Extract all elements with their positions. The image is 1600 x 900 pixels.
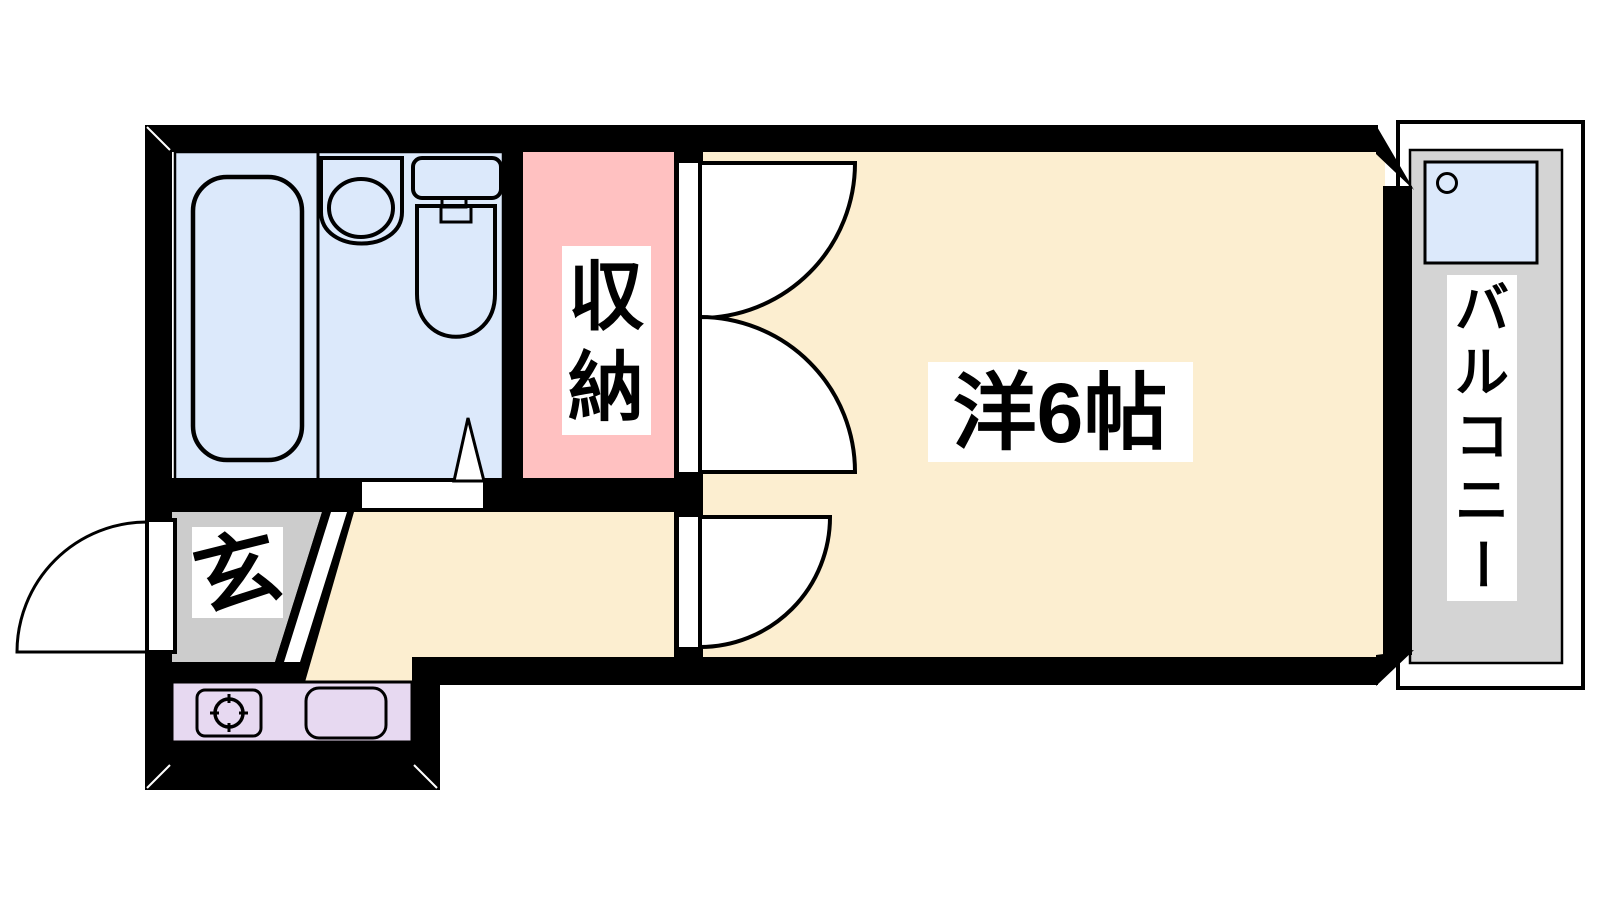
wall-left-upper xyxy=(145,125,172,520)
bathroom-floor xyxy=(175,152,503,480)
wall-kitchen-right xyxy=(412,657,440,790)
closet-door-opening xyxy=(679,163,698,472)
room-door-opening xyxy=(679,517,698,647)
wall-bottom xyxy=(412,657,1378,685)
balcony-label-char-2: ル xyxy=(1455,343,1509,403)
washing-machine-pan xyxy=(1425,162,1537,263)
balcony-label-char-4: ニ xyxy=(1455,471,1509,531)
floor-plan-canvas: 洋6帖 収 納 玄 バ ル コ ニ ー xyxy=(0,0,1600,900)
wall-left-lower xyxy=(145,652,172,790)
closet-label-char-2: 納 xyxy=(568,346,644,431)
main-room-label: 洋6帖 xyxy=(953,366,1168,460)
balcony-label-char-3: コ xyxy=(1455,407,1509,467)
wall-bath-closet-divider xyxy=(503,125,523,512)
balcony-label-char-5: ー xyxy=(1451,537,1511,591)
closet-label-char-1: 収 xyxy=(568,255,644,340)
floor-plan: 洋6帖 収 納 玄 バ ル コ ニ ー xyxy=(0,0,1600,900)
entrance-door-leaf xyxy=(147,520,175,652)
balcony-window xyxy=(1383,186,1412,655)
wall-top xyxy=(145,125,1378,152)
balcony-label-char-1: バ xyxy=(1455,279,1509,339)
hallway-floor xyxy=(305,512,676,682)
washroom-opening xyxy=(362,482,483,508)
